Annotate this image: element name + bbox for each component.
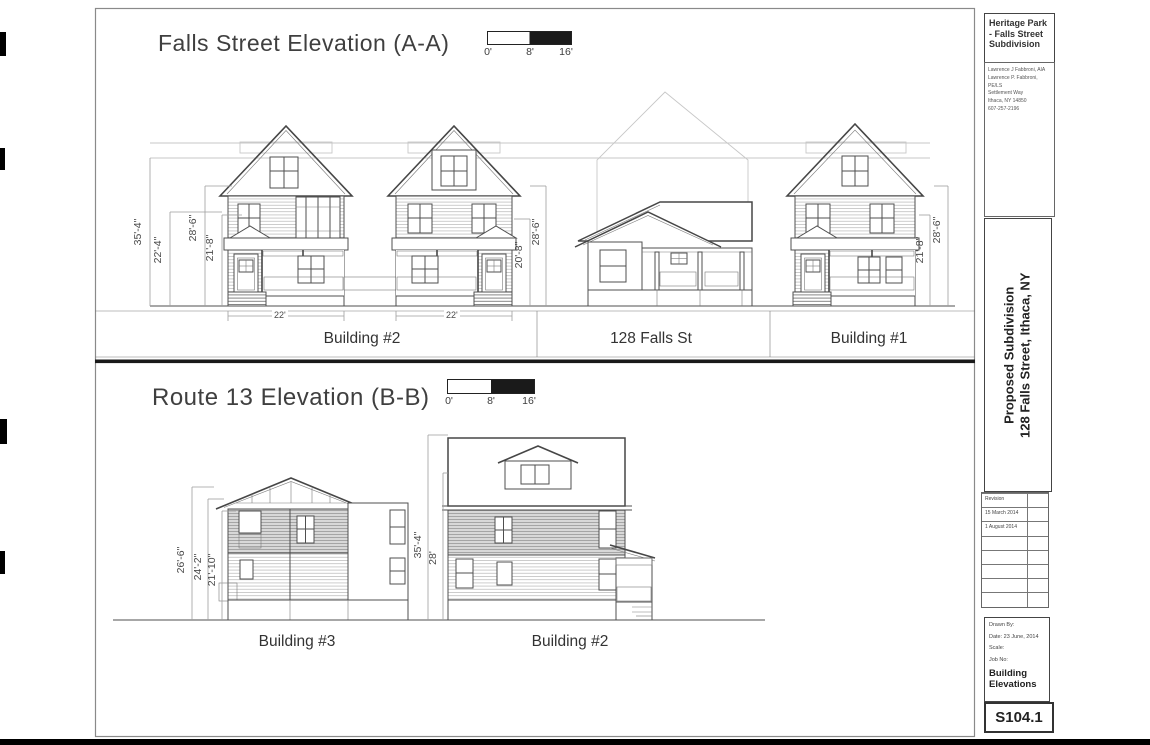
label-building3: Building #3	[217, 633, 377, 651]
dim-a-ridge-left: 28'-6"	[187, 193, 199, 263]
drawing-title-line1: Proposed Subdivision	[1002, 272, 1018, 437]
scale-a-tick-8: 8'	[519, 46, 541, 58]
date-label: Date: 23 June, 2014	[989, 634, 1045, 640]
label-128-falls-st: 128 Falls St	[571, 330, 731, 348]
sheet-title-line2: Elevations	[989, 679, 1045, 690]
dim-a-eave-left: 21'-8"	[204, 213, 216, 283]
scale-b-tick-8: 8'	[480, 395, 502, 407]
dim-a-overall: 35'-4"	[132, 197, 144, 267]
scale-b-tick-16: 16'	[518, 395, 540, 407]
scale-bar-a	[487, 31, 572, 45]
sheet-border	[96, 9, 975, 737]
revision-row-1: 15 March 2014	[982, 507, 1048, 521]
dim-a-width-left: 22'	[272, 310, 288, 320]
fence-between-houses	[344, 277, 396, 290]
drawn-by-label: Drawn By:	[989, 622, 1045, 628]
building3-side	[216, 478, 408, 620]
label-building2-b: Building #2	[490, 633, 650, 651]
dim-b-h3: 21'-10"	[206, 535, 218, 605]
scan-mark	[0, 551, 5, 574]
revision-table: Revision 15 March 2014 1 August 2014	[981, 492, 1049, 608]
drawing-sheet: .ln{stroke:#4f4f4f;stroke-width:1;fill:n…	[0, 0, 1150, 745]
dim-a-left-mid: 22'-4"	[152, 215, 164, 285]
job-no-label: Job No:	[989, 657, 1045, 663]
sheet-number-block: S104.1	[984, 702, 1054, 733]
house-128-falls-st	[575, 202, 752, 306]
firm-line-1: Lawrence J Fabbroni, AIA	[988, 67, 1051, 75]
firm-line-4: Ithaca, NY 14850	[988, 98, 1051, 106]
elevation-a-title: Falls Street Elevation (A-A)	[158, 30, 449, 57]
scan-bottom-bar	[0, 739, 1150, 745]
revision-row-empty	[982, 550, 1048, 564]
drawing-title-block: Proposed Subdivision 128 Falls Street, I…	[984, 218, 1052, 492]
firm-line-5: 607-257-2196	[988, 106, 1051, 114]
firm-line-2: Lawrence P. Fabbroni, PE/LS	[988, 75, 1051, 91]
revision-column-divider	[1027, 493, 1028, 607]
dim-b-h4: 35'-4"	[412, 510, 424, 580]
revision-date-2: 1 August 2014	[985, 524, 1017, 530]
dim-a-mid-height: 20'-8"	[513, 220, 525, 290]
sheet-number: S104.1	[995, 709, 1043, 726]
revision-date-1: 15 March 2014	[985, 510, 1018, 516]
scale-bar-b	[447, 379, 535, 394]
building1-house	[787, 124, 923, 306]
dim-a-ridge-mid: 28'-6"	[530, 197, 542, 267]
label-building1: Building #1	[789, 330, 949, 348]
dim-b-h1: 26'-6"	[175, 525, 187, 595]
project-name-block: Heritage Park - Falls Street Subdivision	[984, 13, 1055, 64]
section-divider-bar	[95, 360, 975, 364]
revision-row-2: 1 August 2014	[982, 521, 1048, 535]
revision-row-empty	[982, 536, 1048, 550]
dim-b-h2: 24'-2"	[192, 532, 204, 602]
drawing-title-line2: 128 Falls Street, Ithaca, NY	[1018, 272, 1034, 437]
dim-a-eave-right: 21'-8"	[914, 215, 926, 285]
scan-mark	[0, 419, 7, 444]
revision-row-empty	[982, 564, 1048, 578]
elevation-b-title: Route 13 Elevation (B-B)	[152, 384, 429, 412]
drawing-info-block: Drawn By: Date: 23 June, 2014 Scale: Job…	[984, 617, 1050, 702]
revision-header-row: Revision	[982, 493, 1048, 507]
revision-row-empty	[982, 578, 1048, 592]
dim-a-width-right: 22'	[444, 310, 460, 320]
firm-line-3: Settlement Way	[988, 90, 1051, 98]
dim-b-h5: 28'	[427, 523, 439, 593]
firm-info-block: Lawrence J Fabbroni, AIA Lawrence P. Fab…	[984, 62, 1055, 217]
scan-mark	[0, 32, 6, 56]
building2-side	[442, 438, 655, 620]
dim-a-ridge-right: 28'-6"	[931, 195, 943, 265]
revision-row-empty	[982, 592, 1048, 606]
sheet-title-line1: Building	[989, 668, 1045, 679]
scale-a-tick-16: 16'	[555, 46, 577, 58]
scale-b-tick-0: 0'	[438, 395, 460, 407]
label-building2: Building #2	[282, 330, 442, 348]
scale-label: Scale:	[989, 645, 1045, 651]
scan-mark	[0, 148, 5, 170]
scale-a-tick-0: 0'	[477, 46, 499, 58]
revision-header: Revision	[985, 496, 1004, 502]
